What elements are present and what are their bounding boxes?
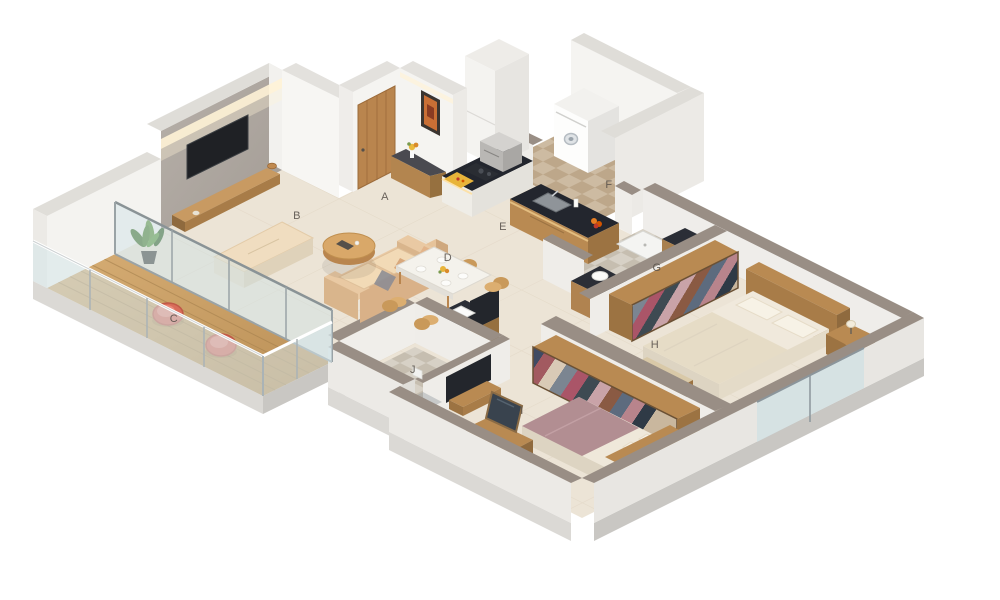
room-label-toilet: J (410, 364, 416, 376)
decor-disc (268, 163, 277, 169)
door-handle (361, 148, 364, 151)
plate (416, 266, 426, 272)
flower-vase (410, 151, 414, 158)
table-lamp (847, 321, 856, 328)
room-label-dining: D (444, 252, 452, 264)
apartment-floorplan-3d: A B C D E F G H I J (0, 0, 1000, 600)
plate (441, 280, 451, 286)
decor-bowl (193, 211, 200, 215)
room-label-master-bedroom: H (651, 339, 659, 351)
room-label-entrance: A (381, 191, 389, 203)
room-label-bedroom2: I (520, 405, 524, 417)
milk-bottle (574, 199, 578, 207)
room-label-balcony: C (170, 313, 178, 325)
room-label-kitchen: E (499, 221, 507, 233)
room-label-utility: F (605, 179, 612, 191)
plate (458, 273, 468, 279)
coffee-table (322, 233, 376, 279)
room-label-living: B (293, 210, 301, 222)
entry-door-wall (339, 61, 400, 192)
cup (355, 241, 359, 245)
entrance-walls (282, 61, 467, 198)
room-label-bathroom: G (652, 262, 661, 274)
round-basin (592, 272, 608, 281)
apartment-render-page: A B C D E F G H I J (0, 0, 1000, 600)
